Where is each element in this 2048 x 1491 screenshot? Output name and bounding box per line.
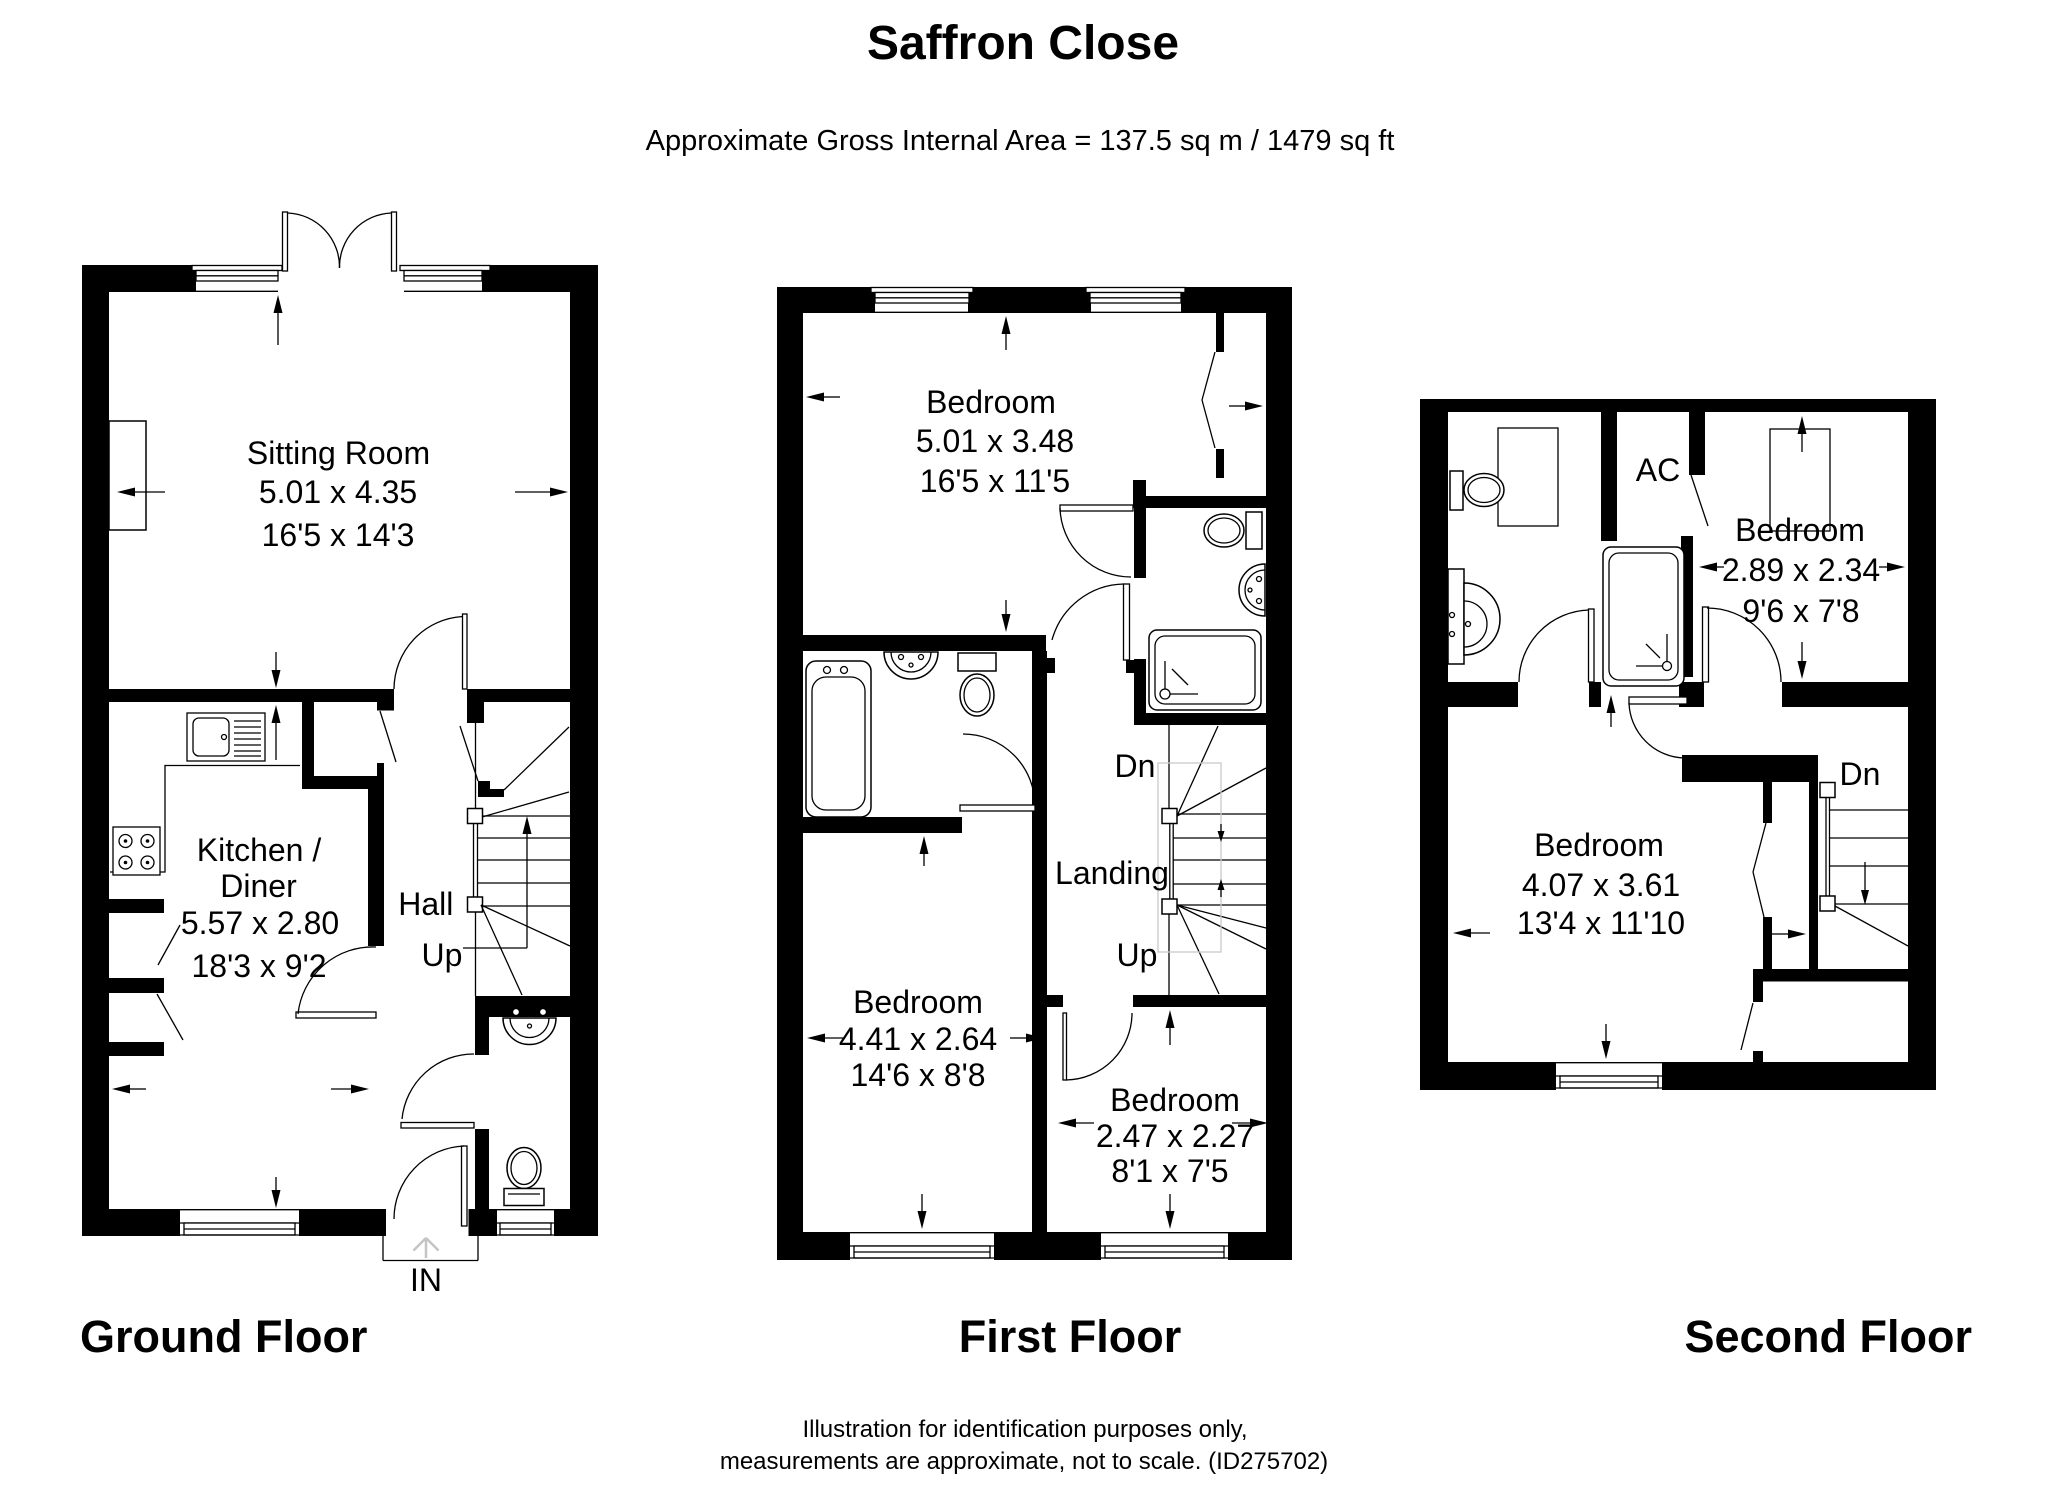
svg-text:8'1 x 7'5: 8'1 x 7'5 (1111, 1153, 1228, 1189)
svg-text:5.57 x 2.80: 5.57 x 2.80 (181, 905, 339, 941)
svg-text:Approximate Gross Internal Are: Approximate Gross Internal Area = 137.5 … (646, 125, 1395, 157)
svg-text:Illustration for identificatio: Illustration for identification purposes… (802, 1416, 1247, 1443)
svg-text:9'6 x 7'8: 9'6 x 7'8 (1742, 593, 1859, 629)
svg-text:Ground Floor: Ground Floor (80, 1311, 367, 1362)
svg-text:Bedroom: Bedroom (1534, 827, 1664, 863)
svg-text:5.01 x 4.35: 5.01 x 4.35 (259, 474, 417, 510)
svg-text:Dn: Dn (1840, 756, 1881, 792)
svg-text:5.01 x 3.48: 5.01 x 3.48 (916, 423, 1074, 459)
svg-text:Kitchen /: Kitchen / (197, 832, 322, 868)
svg-text:Bedroom: Bedroom (853, 984, 983, 1020)
svg-text:2.47 x 2.27: 2.47 x 2.27 (1096, 1118, 1254, 1154)
svg-text:Bedroom: Bedroom (1735, 512, 1865, 548)
svg-text:Dn: Dn (1115, 748, 1156, 784)
svg-text:4.07 x 3.61: 4.07 x 3.61 (1522, 867, 1680, 903)
svg-text:measurements are approximate,: measurements are approximate, not to sca… (720, 1448, 1328, 1475)
svg-text:16'5 x 11'5: 16'5 x 11'5 (920, 463, 1070, 499)
svg-text:First Floor: First Floor (959, 1311, 1182, 1362)
svg-text:Up: Up (422, 937, 463, 973)
svg-text:IN: IN (410, 1262, 442, 1298)
svg-text:Bedroom: Bedroom (1110, 1082, 1240, 1118)
svg-text:Up: Up (1117, 937, 1158, 973)
svg-text:Bedroom: Bedroom (926, 384, 1056, 420)
svg-text:18'3 x 9'2: 18'3 x 9'2 (192, 948, 327, 984)
svg-text:Saffron Close: Saffron Close (867, 17, 1179, 70)
svg-text:Sitting Room: Sitting Room (247, 435, 430, 471)
svg-text:Hall: Hall (398, 886, 453, 922)
svg-text:AC: AC (1636, 452, 1680, 488)
svg-text:13'4 x 11'10: 13'4 x 11'10 (1517, 905, 1685, 941)
svg-text:14'6 x 8'8: 14'6 x 8'8 (851, 1057, 986, 1093)
svg-text:Landing: Landing (1055, 855, 1169, 891)
svg-text:4.41 x 2.64: 4.41 x 2.64 (839, 1021, 997, 1057)
svg-text:Diner: Diner (220, 868, 297, 904)
svg-text:Second Floor: Second Floor (1684, 1311, 1972, 1362)
svg-text:16'5 x 14'3: 16'5 x 14'3 (262, 517, 415, 553)
svg-text:2.89 x 2.34: 2.89 x 2.34 (1722, 552, 1880, 588)
